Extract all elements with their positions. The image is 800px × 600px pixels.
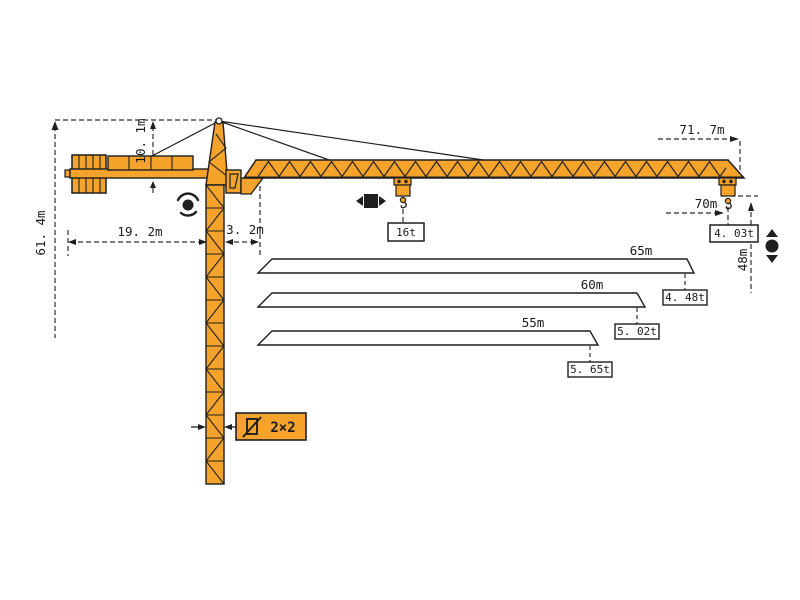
- trolley-frame: [394, 178, 411, 185]
- hoisting-icon: [766, 229, 779, 263]
- label-tip-load-65m: 4. 48t: [665, 291, 705, 304]
- jib-tie-rod-inner: [219, 121, 332, 161]
- slewing-icon: [178, 194, 198, 216]
- arrow-up-lifting-height: [748, 202, 754, 211]
- tower-head: [206, 122, 228, 185]
- hook-block: [721, 185, 735, 196]
- travel-square: [364, 194, 378, 208]
- label-counter-jib-radius: 19. 2m: [117, 224, 162, 239]
- label-max-lifting-capacity: 16t: [396, 226, 416, 239]
- trolley-mid: [394, 178, 411, 208]
- jib-tie-rod-outer: [219, 121, 490, 161]
- label-jib-length-65m: 65m: [630, 243, 653, 258]
- label-tower-head-height: 10. 1m: [133, 118, 148, 163]
- arrow-up-icon: [766, 229, 778, 237]
- trolley-wheel: [404, 180, 407, 183]
- arrow-right-root-offset: [251, 239, 259, 245]
- label-lifting-height: 48m: [735, 249, 750, 272]
- jib-option-60m: 60m 5. 02t: [258, 277, 659, 339]
- arrow-right-jib-length: [730, 136, 739, 142]
- trolley-travel-icon: [356, 194, 386, 208]
- slewing-arc-bottom: [181, 212, 196, 215]
- label-max-working-radius: 70m: [695, 196, 718, 211]
- arrow-down-icon: [766, 255, 778, 263]
- trolley-wheel: [397, 180, 400, 183]
- tower-crane-diagram: 61. 4m 10. 1m 19. 2m 3. 2m 71. 7m 70m 48…: [0, 0, 800, 600]
- apex-pin: [216, 118, 222, 124]
- trolley-tip: [719, 178, 736, 209]
- label-total-height: 61. 4m: [33, 210, 48, 255]
- arrow-left-counter-jib: [68, 239, 76, 245]
- hoist-dot: [766, 240, 779, 253]
- label-jib-overall-length: 71. 7m: [679, 122, 724, 137]
- jib-option-55m: 55m 5. 65t: [258, 315, 612, 377]
- trolley-wheel: [729, 180, 732, 183]
- callout-arrow-right-icon: [198, 424, 206, 430]
- counter-jib-tie-rod: [150, 121, 219, 157]
- arrow-right-icon: [379, 196, 386, 206]
- arrow-up-total-height: [52, 121, 59, 130]
- jib-profile-65m: [258, 259, 694, 273]
- trolley-wheel: [722, 180, 725, 183]
- label-tip-load-70m: 4. 03t: [714, 227, 754, 240]
- label-tip-load-60m: 5. 02t: [617, 325, 657, 338]
- arrow-left-icon: [356, 196, 363, 206]
- jib-profile-55m: [258, 331, 598, 345]
- slewing-dot: [183, 200, 194, 211]
- arrow-up-beam-underside: [150, 181, 156, 188]
- hook-block: [396, 185, 410, 196]
- tie-rods: [150, 121, 490, 161]
- callout-arrow-left-icon: [224, 424, 232, 430]
- label-jib-root-offset: 3. 2m: [226, 222, 264, 237]
- label-jib-length-55m: 55m: [522, 315, 545, 330]
- jib-profile-60m: [258, 293, 645, 307]
- label-mast-section-size: 2×2: [270, 420, 295, 436]
- crane-diagram-canvas: 61. 4m 10. 1m 19. 2m 3. 2m 71. 7m 70m 48…: [0, 0, 800, 600]
- label-tip-load-55m: 5. 65t: [570, 363, 610, 376]
- jib-lattice: [258, 160, 726, 177]
- mast-lattice: [206, 185, 224, 484]
- slewing-arc-top: [178, 194, 198, 200]
- trolley-frame: [719, 178, 736, 185]
- label-jib-length-60m: 60m: [581, 277, 604, 292]
- arrow-up-head-height: [150, 121, 156, 129]
- load-value-boxes: 16t 4. 03t: [388, 223, 758, 242]
- arrow-left-root-offset: [225, 239, 233, 245]
